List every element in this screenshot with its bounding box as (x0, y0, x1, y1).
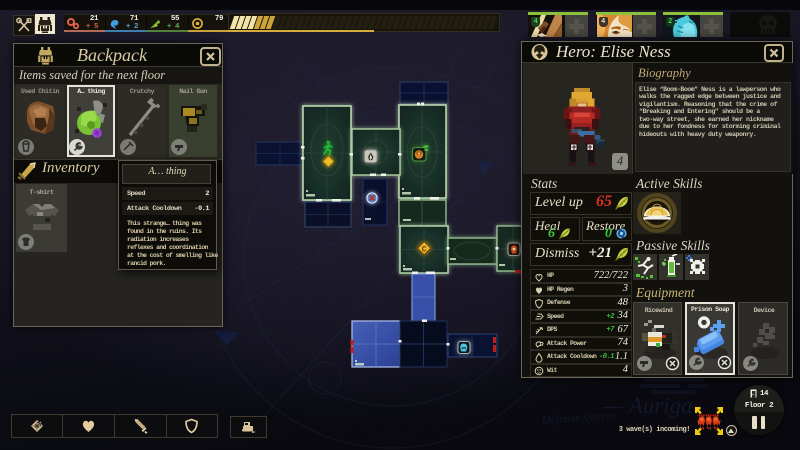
svg-text:C: C (422, 245, 427, 254)
